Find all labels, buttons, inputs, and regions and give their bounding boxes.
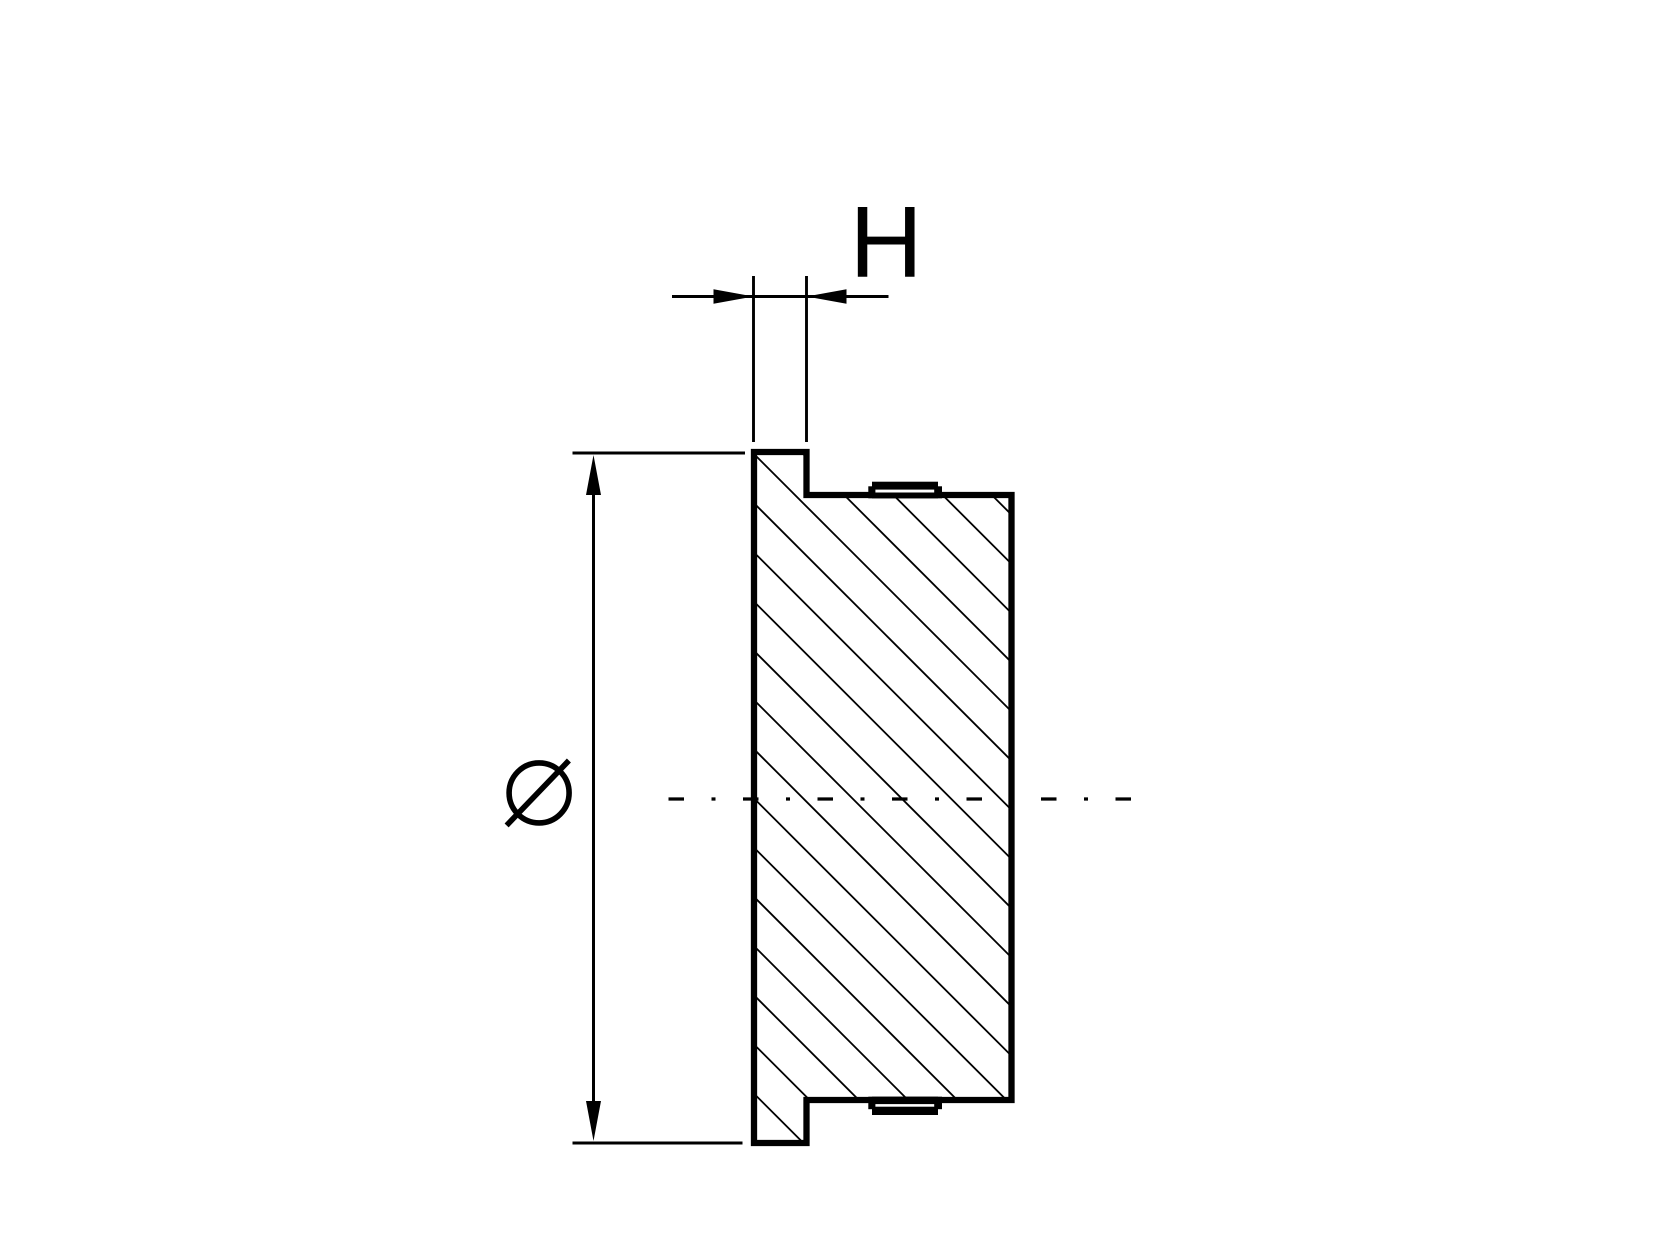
svg-text:H: H xyxy=(850,185,923,299)
